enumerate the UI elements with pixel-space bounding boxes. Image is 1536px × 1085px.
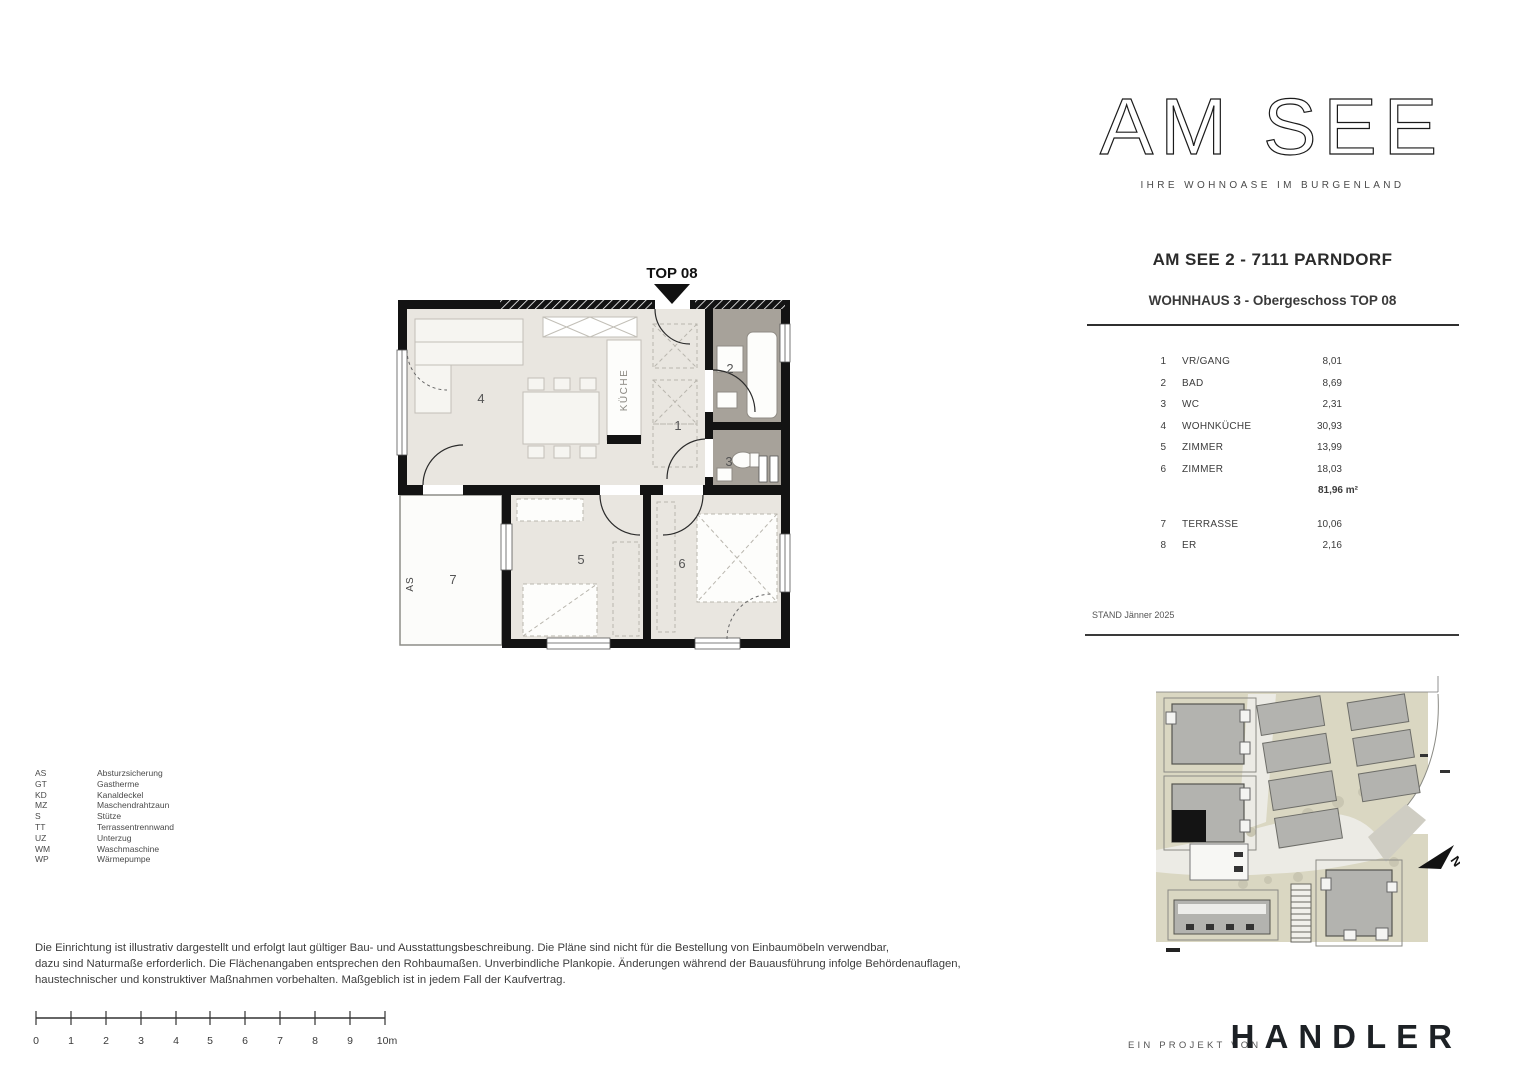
entrance-marker-icon <box>654 284 690 304</box>
legend-item: UZUnterzug <box>35 833 174 844</box>
legend-item: TTTerrassentrennwand <box>35 822 174 833</box>
legend-item: GTGastherme <box>35 779 174 790</box>
legend-item: WPWärmepumpe <box>35 854 174 865</box>
legend-item: ASAbsturzsicherung <box>35 768 174 779</box>
kitchen-label: KÜCHE <box>618 369 630 412</box>
outbuilding <box>1190 844 1248 880</box>
desk <box>517 499 583 521</box>
room-number-5: 5 <box>577 552 584 567</box>
building-house-se <box>1326 870 1392 936</box>
svg-text:2: 2 <box>103 1035 109 1047</box>
building-house-a <box>1172 704 1244 764</box>
table-row: 4 WOHNKÜCHE 30,93 <box>1150 421 1342 443</box>
room-area-table: 1 VR/GANG 8,01 2 BAD 8,69 3 WC 2,31 4 WO… <box>1150 356 1342 562</box>
scale-labels: 0 1 2 3 4 5 6 7 8 9 10m <box>33 1035 397 1047</box>
table-row: 8 ER 2,16 <box>1150 540 1342 562</box>
svg-text:0: 0 <box>33 1035 39 1047</box>
disclaimer-line: Die Einrichtung ist illustrativ dargeste… <box>35 941 975 957</box>
room-number-1: 1 <box>674 418 681 433</box>
room-number-2: 2 <box>726 361 733 376</box>
logo-tagline: IHRE WOHNOASE IM BURGENLAND <box>1085 180 1460 191</box>
divider-bottom <box>1085 634 1459 636</box>
bath-sink <box>717 392 737 408</box>
svg-text:4: 4 <box>173 1035 179 1047</box>
site-plan: N <box>1148 672 1460 957</box>
bathtub <box>747 332 777 418</box>
disclaimer: Die Einrichtung ist illustrativ dargeste… <box>35 941 975 988</box>
plan-subtitle: WOHNHAUS 3 - Obergeschoss TOP 08 <box>1085 293 1460 308</box>
party-wall-hatch <box>500 300 652 309</box>
table-row: 3 WC 2,31 <box>1150 399 1342 421</box>
abbreviation-legend: ASAbsturzsicherung GTGastherme KDKanalde… <box>35 768 174 865</box>
table-row: 2 BAD 8,69 <box>1150 378 1342 400</box>
legend-item: SStütze <box>35 811 174 822</box>
highlighted-unit <box>1172 810 1206 842</box>
scale-bar: 0 1 2 3 4 5 6 7 8 9 10m <box>28 1004 398 1056</box>
table-row: 5 ZIMMER 13,99 <box>1150 442 1342 464</box>
svg-text:10m: 10m <box>377 1035 398 1047</box>
entrance-top-label: TOP 08 <box>646 265 697 282</box>
svg-text:7: 7 <box>277 1035 283 1047</box>
svg-text:9: 9 <box>347 1035 353 1047</box>
logo-text: AM SEE <box>1100 82 1444 171</box>
project-title: AM SEE 2 - 7111 PARNDORF <box>1085 250 1460 270</box>
svg-text:5: 5 <box>207 1035 213 1047</box>
as-label: AS <box>405 576 416 591</box>
table-total-row: 81,96 m² <box>1150 485 1342 507</box>
svg-text:8: 8 <box>312 1035 318 1047</box>
disclaimer-line: dazu sind Naturmaße erforderlich. Die Fl… <box>35 957 975 973</box>
legend-item: WMWaschmaschine <box>35 844 174 855</box>
room-number-6: 6 <box>678 556 685 571</box>
svg-text:1: 1 <box>68 1035 74 1047</box>
kitchen-cabinets <box>543 317 637 337</box>
floor-plan: TOP 08 <box>395 262 795 652</box>
svg-text:3: 3 <box>138 1035 144 1047</box>
room-number-4: 4 <box>477 391 484 406</box>
table-row: 6 ZIMMER 18,03 <box>1150 464 1342 486</box>
table-row: 7 TERRASSE 10,06 <box>1150 519 1342 541</box>
handler-logo: HANDLER <box>1231 1018 1462 1056</box>
north-label: N <box>1448 853 1460 869</box>
legend-item: MZMaschendrahtzaun <box>35 800 174 811</box>
svg-text:6: 6 <box>242 1035 248 1047</box>
terrace-floor <box>400 495 502 645</box>
room-number-3: 3 <box>725 454 732 469</box>
total-area: 81,96 m² <box>1318 485 1358 496</box>
room-number-7: 7 <box>449 572 456 587</box>
party-wall-hatch <box>695 300 785 309</box>
table-row: 1 VR/GANG 8,01 <box>1150 356 1342 378</box>
parking-strip <box>1291 884 1311 942</box>
dining-table <box>523 392 599 444</box>
wc-sink <box>717 468 732 481</box>
disclaimer-line: haustechnischer und konstruktiver Maßnah… <box>35 973 975 989</box>
stand-date: STAND Jänner 2025 <box>1092 610 1174 620</box>
divider-top <box>1087 324 1459 326</box>
am-see-logo: AM SEE <box>1085 58 1460 178</box>
legend-item: KDKanaldeckel <box>35 790 174 801</box>
